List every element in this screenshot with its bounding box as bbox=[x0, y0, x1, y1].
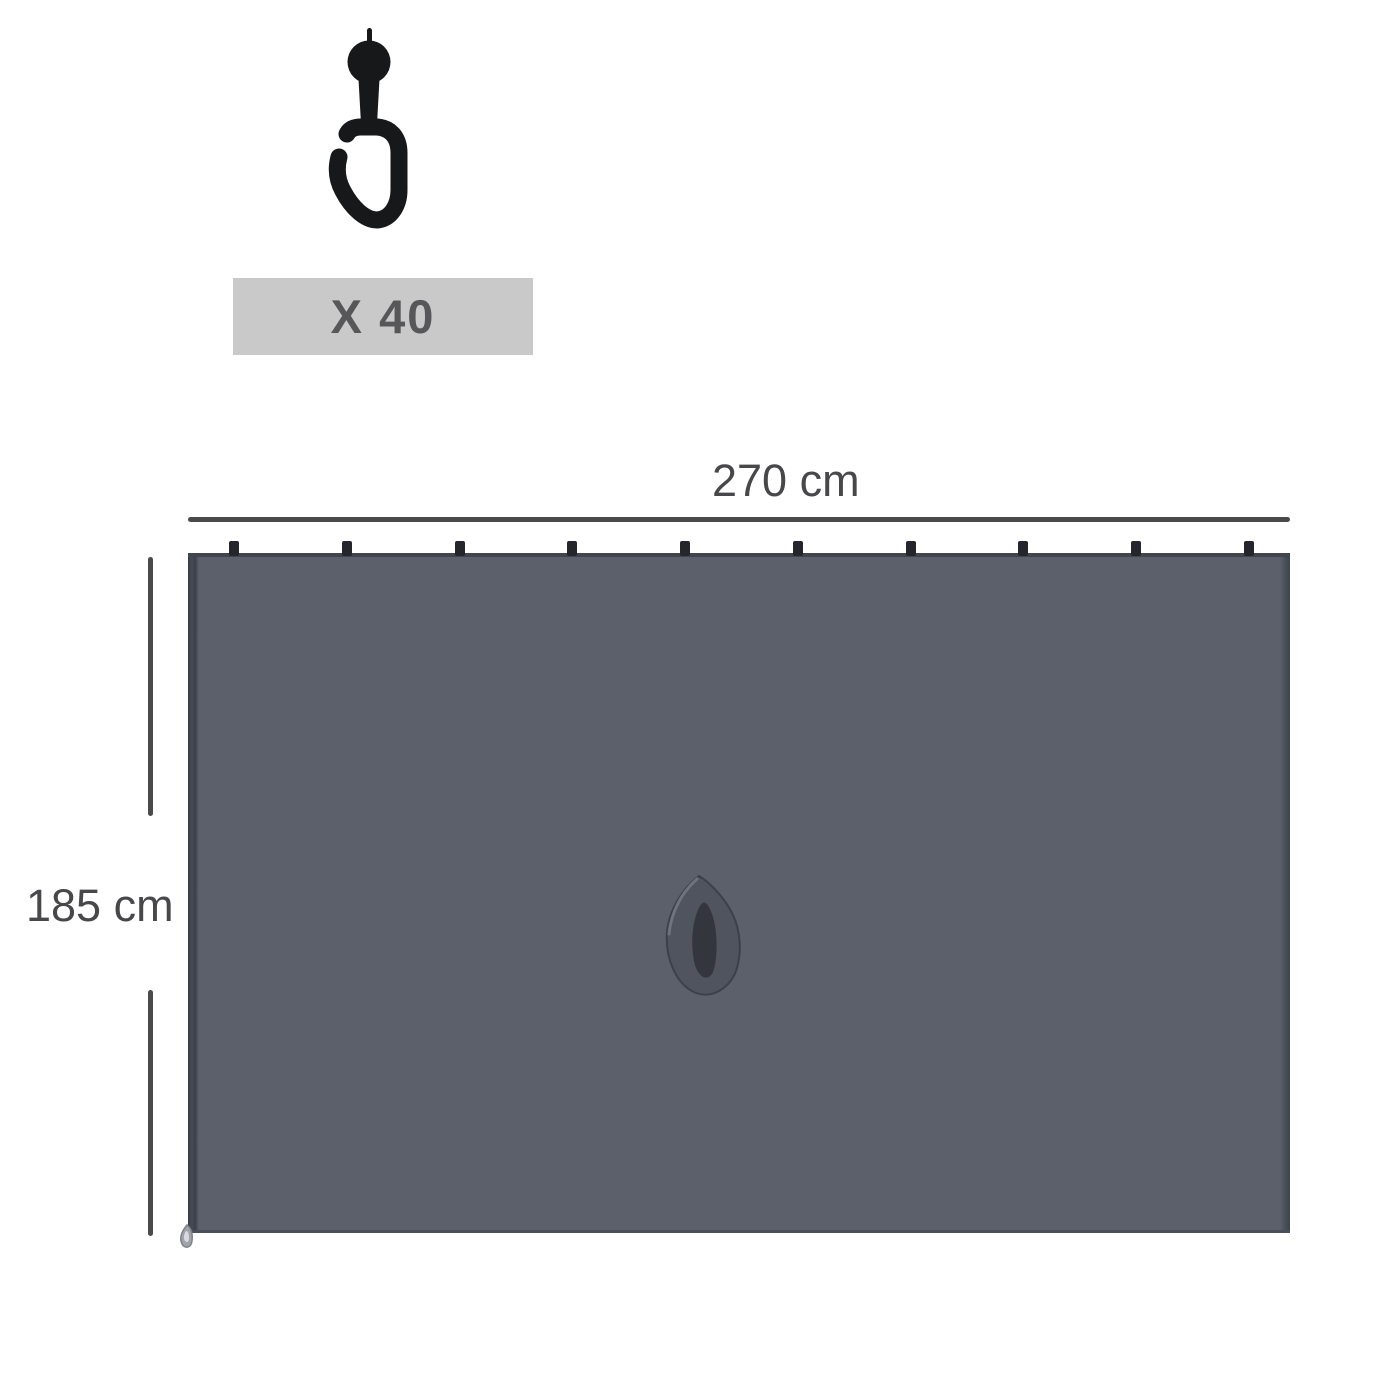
panel-hook-knob bbox=[1244, 541, 1254, 556]
height-dimension-label: 185 cm bbox=[26, 880, 174, 932]
quantity-badge: X 40 bbox=[233, 278, 533, 355]
width-dimension-line bbox=[188, 517, 1290, 522]
hook-neck bbox=[358, 70, 380, 124]
panel-hook-knob bbox=[1018, 541, 1028, 556]
zipper-pull bbox=[172, 1222, 198, 1250]
width-dimension-label: 270 cm bbox=[712, 455, 860, 507]
fabric-handle bbox=[655, 865, 750, 1000]
panel-hook-knob bbox=[342, 541, 352, 556]
quantity-label: X 40 bbox=[331, 289, 436, 344]
product-dimension-diagram: X 40 270 cm 185 cm bbox=[0, 0, 1400, 1400]
panel-hook-knob bbox=[906, 541, 916, 556]
height-dimension-line-lower bbox=[148, 990, 153, 1236]
panel-hook-knob bbox=[567, 541, 577, 556]
panel-hook-knob bbox=[793, 541, 803, 556]
panel-hook-knob bbox=[680, 541, 690, 556]
panel-hook-knob bbox=[1131, 541, 1141, 556]
curtain-hook-icon bbox=[318, 22, 414, 234]
hook-body bbox=[337, 127, 399, 220]
height-dimension-line-upper bbox=[148, 557, 153, 816]
panel-hook-knob bbox=[455, 541, 465, 556]
panel-hook-knob bbox=[229, 541, 239, 556]
